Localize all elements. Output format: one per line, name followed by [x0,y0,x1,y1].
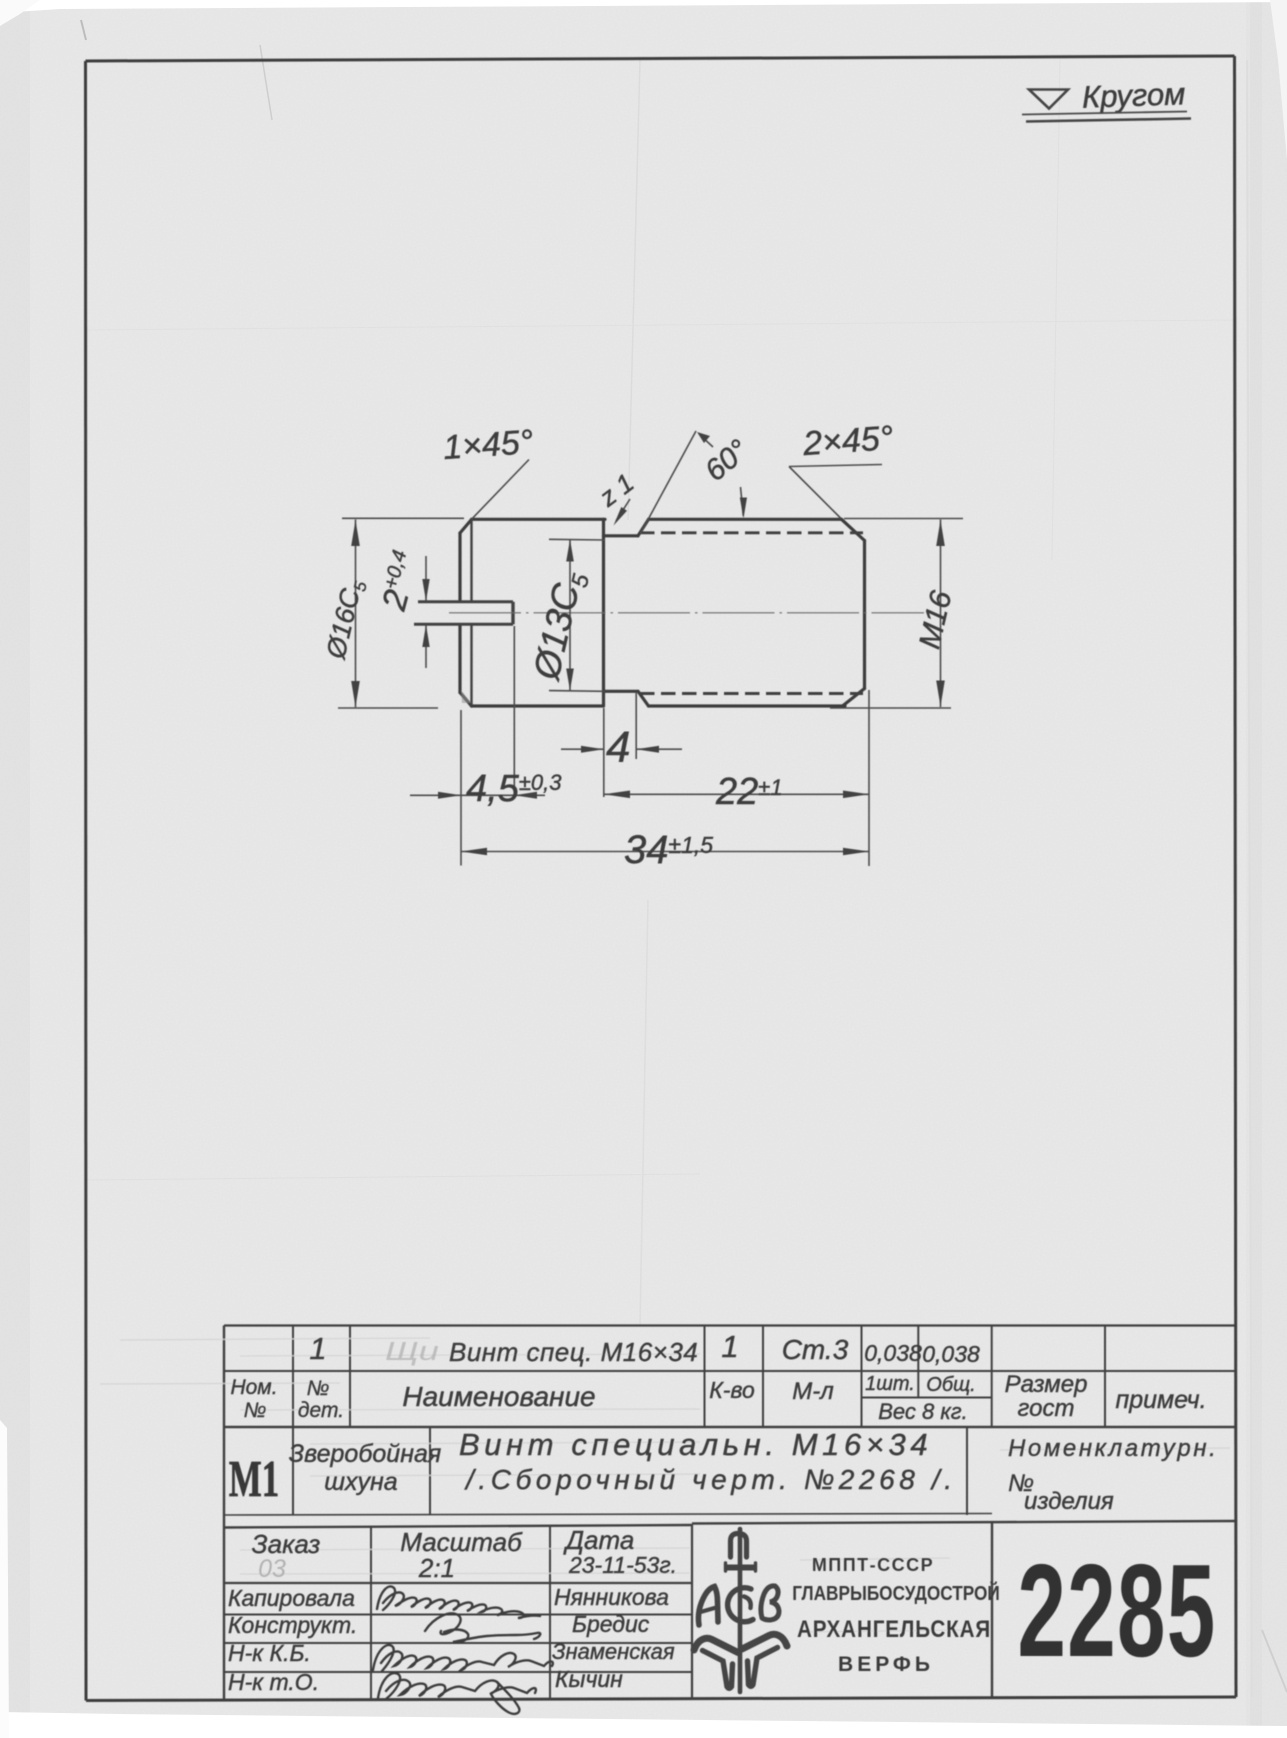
svg-text:0,038: 0,038 [922,1341,980,1367]
svg-text:2285: 2285 [1017,1537,1216,1685]
svg-text:4: 4 [606,723,630,772]
svg-text:1×45°: 1×45° [442,423,535,467]
svg-text:Н-к т.О.: Н-к т.О. [228,1669,319,1695]
svg-text:Щи: Щи [385,1336,439,1366]
svg-text:Размер: Размер [1005,1371,1088,1398]
svg-text:Ст.3: Ст.3 [782,1334,849,1365]
svg-text:1шт.: 1шт. [865,1373,915,1395]
svg-text:Н-к К.Б.: Н-к К.Б. [228,1640,311,1666]
svg-text:Наименование: Наименование [402,1381,595,1412]
svg-text:Общ.: Общ. [926,1374,975,1396]
svg-text:Винт спец. М16×34: Винт спец. М16×34 [449,1337,698,1367]
svg-text:АРХАНГЕЛЬСКАЯ: АРХАНГЕЛЬСКАЯ [797,1616,991,1643]
svg-text:№: № [244,1399,267,1422]
svg-text:Зверобойная: Зверобойная [289,1440,441,1468]
svg-text:1: 1 [309,1331,326,1366]
svg-text:гост: гост [1018,1395,1075,1422]
svg-text:0,038: 0,038 [864,1340,922,1366]
svg-text:М-л: М-л [792,1378,834,1405]
svg-text:2×45°: 2×45° [801,419,895,463]
svg-text:№: № [307,1377,330,1400]
svg-text:дет.: дет. [298,1399,344,1422]
svg-text:23-11-53г.: 23-11-53г. [568,1552,677,1578]
svg-text:Винт специальн. М16×34: Винт специальн. М16×34 [459,1427,932,1462]
svg-text:Бредис: Бредис [572,1611,650,1637]
svg-text:Кычин: Кычин [555,1666,623,1692]
svg-text:К-во: К-во [709,1377,755,1403]
svg-text:Нянникова: Нянникова [554,1584,669,1610]
svg-text:примеч.: примеч. [1115,1386,1206,1414]
svg-text:шхуна: шхуна [324,1468,398,1496]
svg-text:2:1: 2:1 [418,1553,455,1583]
svg-text:Вес 8 кг.: Вес 8 кг. [878,1399,967,1424]
svg-text:Кругом: Кругом [1081,76,1186,115]
svg-text:Номенклатурн.: Номенклатурн. [1008,1435,1218,1462]
svg-text:Дата: Дата [563,1525,635,1555]
svg-text:ГЛАВРЫБОСУДОСТРОЙ: ГЛАВРЫБОСУДОСТРОЙ [792,1582,1000,1606]
svg-text:/.Сборочный черт. №2268 /.: /.Сборочный черт. №2268 /. [464,1464,957,1495]
svg-text:1: 1 [721,1329,738,1364]
svg-text:Знаменская: Знаменская [552,1639,675,1664]
svg-text:изделия: изделия [1024,1488,1114,1515]
svg-text:Капировала: Капировала [228,1585,355,1611]
svg-text:Конструкт.: Конструкт. [228,1612,357,1638]
svg-text:М1: М1 [229,1450,279,1508]
svg-text:Ном.: Ном. [230,1376,277,1399]
svg-text:03: 03 [258,1555,286,1583]
svg-text:ВЕРФЬ: ВЕРФЬ [838,1653,934,1676]
svg-text:МППТ-СССР: МППТ-СССР [812,1555,934,1575]
